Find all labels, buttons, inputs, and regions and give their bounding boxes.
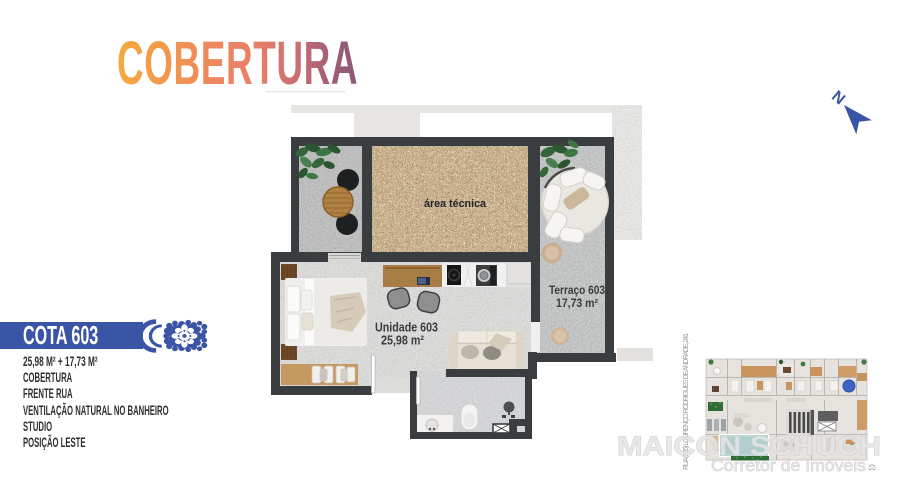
svg-text:área técnica: área técnica	[424, 198, 487, 210]
svg-text:17,73 m²: 17,73 m²	[556, 298, 598, 310]
svg-text:N: N	[828, 88, 848, 108]
svg-text:Terraço 603: Terraço 603	[549, 285, 605, 297]
svg-text:⚖: ⚖	[868, 462, 876, 472]
svg-text:25,98 m²: 25,98 m²	[381, 333, 425, 348]
svg-text:Corretor de Imóveis: Corretor de Imóveis	[711, 456, 866, 475]
